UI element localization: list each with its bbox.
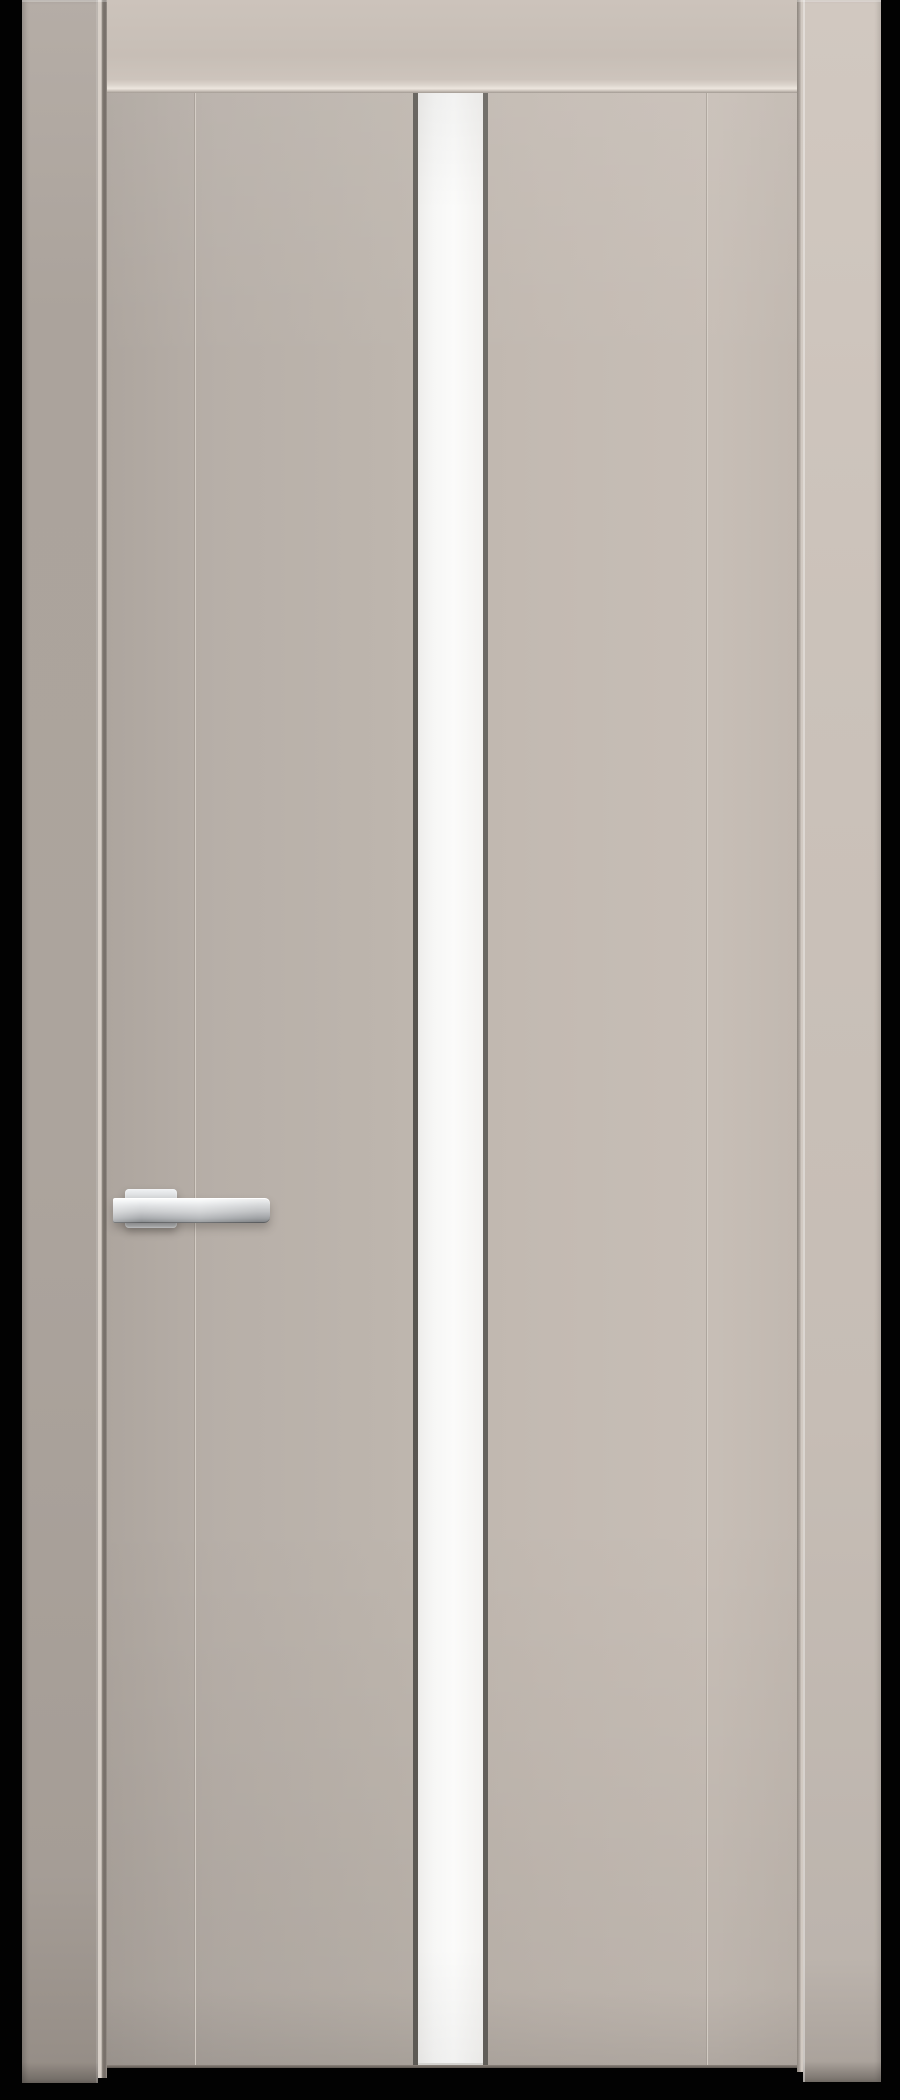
door-gap-left bbox=[98, 0, 107, 2078]
door-groove-left bbox=[194, 93, 196, 2065]
door-groove-right bbox=[706, 93, 708, 2065]
door-assembly bbox=[107, 0, 797, 2068]
door-frame-header bbox=[107, 0, 797, 80]
glass-insert bbox=[413, 93, 488, 2065]
door-leaf bbox=[107, 93, 797, 2068]
glass-pane bbox=[418, 93, 483, 2065]
door-handle-lever bbox=[113, 1198, 270, 1223]
door-top-rail-molding bbox=[107, 80, 797, 93]
glass-trim-right bbox=[483, 93, 488, 2065]
door-product-photo: Beige sand-colored interior door with fr… bbox=[0, 0, 900, 2100]
door-frame-right-pillar bbox=[803, 0, 881, 2082]
door-bottom-edge bbox=[107, 2065, 797, 2068]
door-frame-left-pillar bbox=[22, 0, 98, 2083]
